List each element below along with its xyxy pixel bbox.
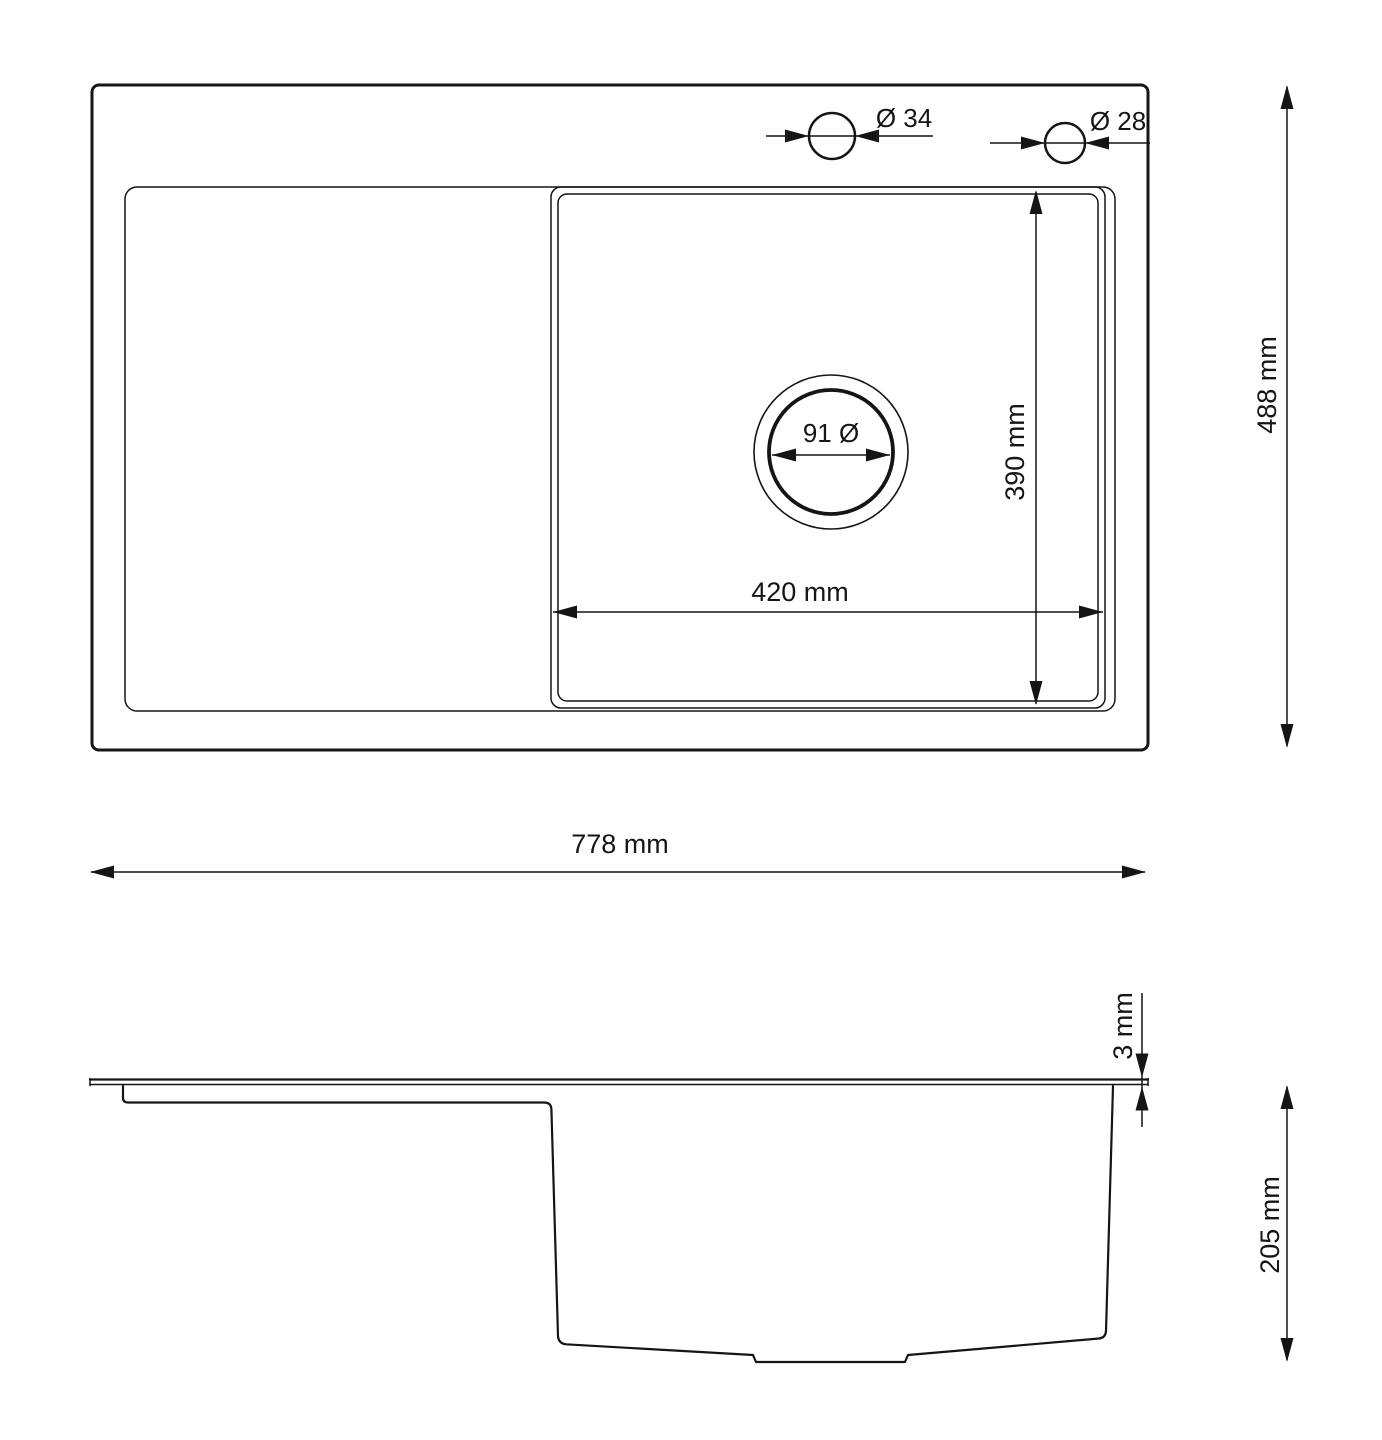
arrowhead-right-icon bbox=[1021, 137, 1045, 150]
drain-hole-outer bbox=[754, 375, 908, 529]
arrowhead-right-icon bbox=[785, 130, 809, 143]
dim-label-overall-width: 778 mm bbox=[571, 829, 669, 859]
arrowhead-left-icon bbox=[90, 866, 114, 879]
arrowhead-up-icon bbox=[1136, 1087, 1149, 1111]
dim-bowl-depth: 390 mm bbox=[1000, 190, 1043, 705]
dim-plate-thickness: 3 mm bbox=[1108, 992, 1149, 1127]
arrowhead-right-icon bbox=[1079, 606, 1103, 619]
dim-label-faucet-small: Ø 28 bbox=[1090, 106, 1146, 136]
dim-bowl-height: 205 mm bbox=[1255, 1085, 1294, 1362]
dim-overall-width: 778 mm bbox=[90, 829, 1146, 879]
dim-label-bowl-width: 420 mm bbox=[751, 577, 849, 607]
dim-label-overall-depth: 488 mm bbox=[1252, 336, 1282, 434]
arrowhead-up-icon bbox=[1281, 1085, 1294, 1109]
sink-outer-edge bbox=[92, 85, 1148, 750]
dim-label-drain: 91 Ø bbox=[803, 418, 859, 448]
arrowhead-left-icon bbox=[772, 449, 796, 462]
dim-bowl-width: 420 mm bbox=[553, 577, 1103, 619]
arrowhead-down-icon bbox=[1281, 724, 1294, 748]
arrowhead-up-icon bbox=[1281, 85, 1294, 109]
dim-drain-hole: 91 Ø bbox=[772, 418, 890, 462]
side-view: 3 mm 205 mm bbox=[90, 992, 1294, 1362]
arrowhead-left-icon bbox=[1085, 137, 1109, 150]
arrowhead-left-icon bbox=[553, 606, 577, 619]
bowl-profile bbox=[123, 1086, 1113, 1362]
top-view: Ø 34 Ø 28 91 Ø 390 mm 420 mm bbox=[92, 85, 1294, 750]
dim-label-bowl-height: 205 mm bbox=[1255, 1176, 1285, 1274]
dim-label-plate-thickness: 3 mm bbox=[1108, 992, 1138, 1060]
arrowhead-down-icon bbox=[1281, 1338, 1294, 1362]
top-plate bbox=[90, 1079, 1148, 1086]
dim-overall-depth: 488 mm bbox=[1252, 85, 1294, 748]
sink-technical-drawing: Ø 34 Ø 28 91 Ø 390 mm 420 mm bbox=[0, 0, 1382, 1440]
dim-label-faucet-large: Ø 34 bbox=[876, 103, 932, 133]
dim-faucet-hole-small: Ø 28 bbox=[990, 106, 1150, 150]
sink-rim bbox=[125, 187, 1115, 711]
dim-label-bowl-depth: 390 mm bbox=[1000, 403, 1030, 501]
arrowhead-right-icon bbox=[1122, 866, 1146, 879]
arrowhead-right-icon bbox=[866, 449, 890, 462]
